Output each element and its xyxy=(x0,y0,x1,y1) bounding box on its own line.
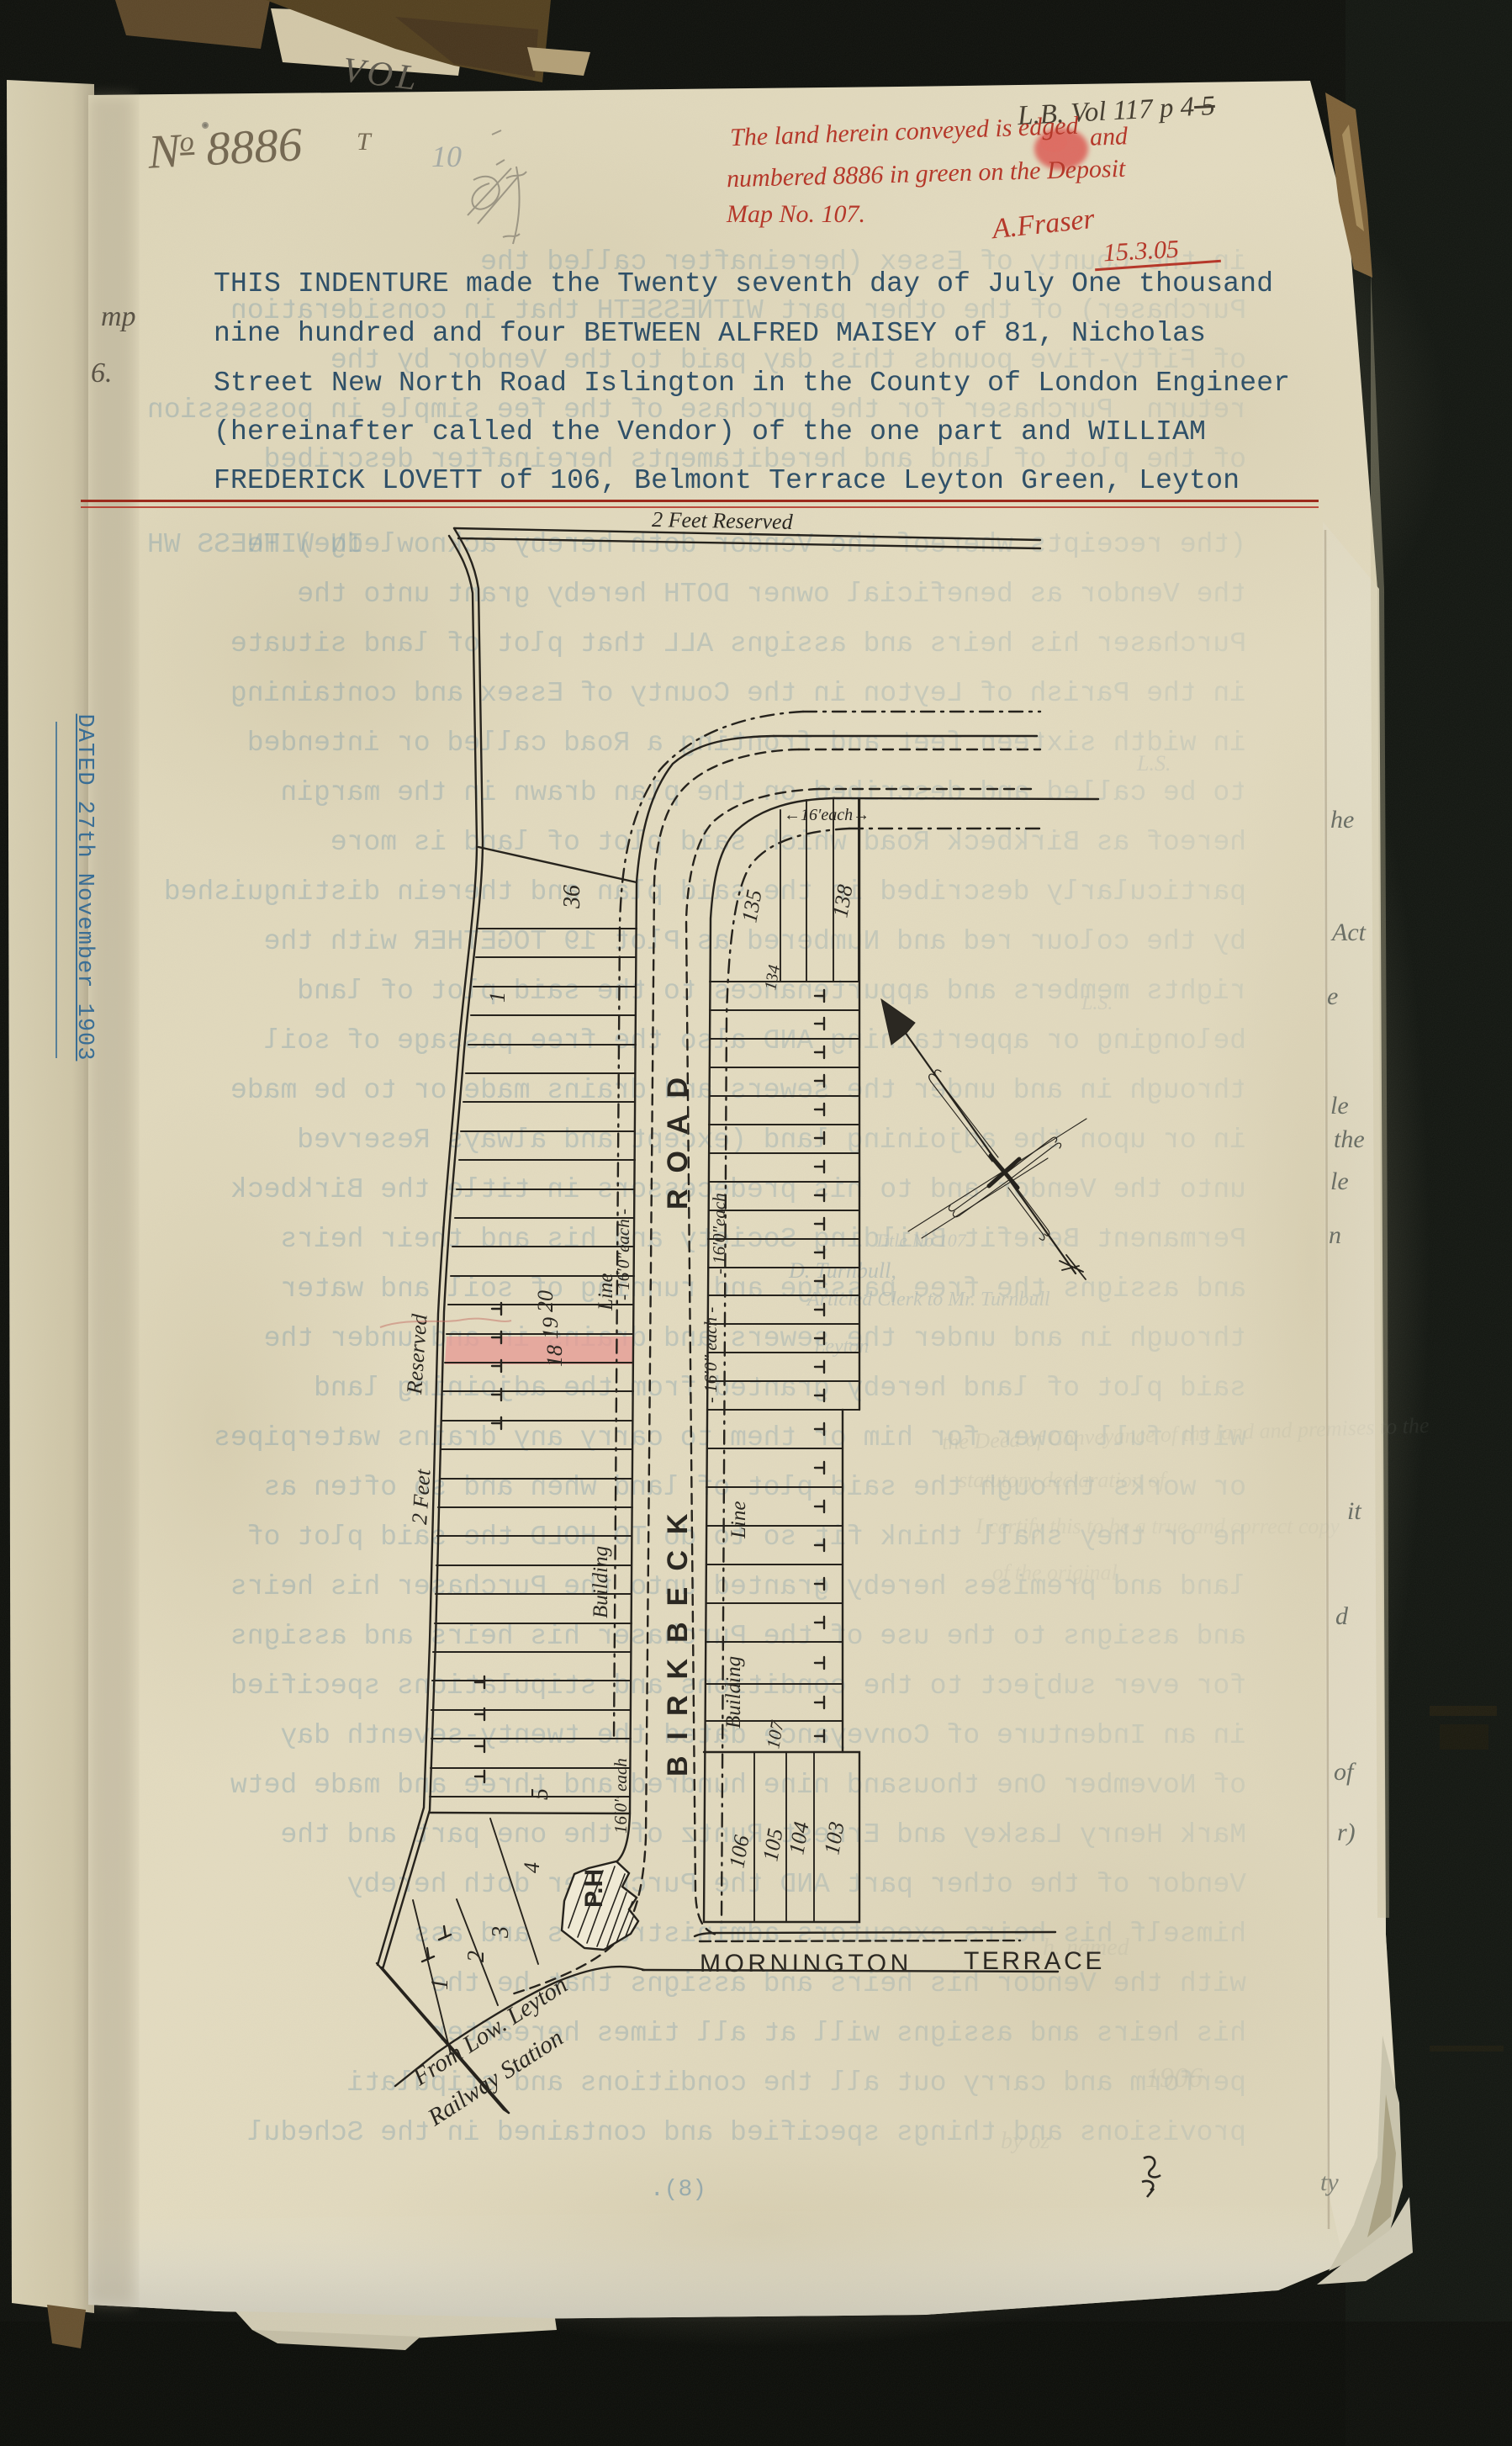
svg-text:2 Feet: 2 Feet xyxy=(407,1468,436,1525)
svg-text:135: 135 xyxy=(737,888,766,924)
svg-text:18: 18 xyxy=(542,1345,567,1367)
svg-text:MORNINGTON: MORNINGTON xyxy=(700,1950,912,1977)
svg-text:19: 19 xyxy=(538,1317,563,1339)
svg-text:BIRKBECK: BIRKBECK xyxy=(662,1498,694,1776)
svg-text:5: 5 xyxy=(527,1788,553,1800)
svg-text:16′0″ each: 16′0″ each xyxy=(611,1758,631,1834)
svg-text:2: 2 xyxy=(463,1951,489,1962)
svg-text:P.H: P.H xyxy=(580,1869,608,1908)
svg-text:2 Feet Reserved: 2 Feet Reserved xyxy=(652,507,794,534)
svg-text:134: 134 xyxy=(761,964,784,992)
svg-text:20: 20 xyxy=(533,1290,558,1312)
svg-text:Building: Building xyxy=(589,1546,612,1618)
svg-text:104: 104 xyxy=(784,1820,813,1856)
svg-text:Reserved: Reserved xyxy=(402,1312,432,1395)
svg-text:36: 36 xyxy=(559,885,585,909)
svg-text:Building: Building xyxy=(722,1656,745,1729)
svg-text:138: 138 xyxy=(827,883,857,919)
svg-text:106: 106 xyxy=(724,1834,753,1870)
svg-text:- 16′0″each: - 16′0″each xyxy=(709,1193,729,1274)
svg-text:Line: Line xyxy=(727,1501,750,1539)
svg-text:- 16′0″each -: - 16′0″each - xyxy=(613,1209,633,1300)
svg-text:ROAD: ROAD xyxy=(662,1062,694,1210)
svg-text:105: 105 xyxy=(758,1827,787,1863)
svg-text:1: 1 xyxy=(427,1978,453,1990)
svg-text:4: 4 xyxy=(520,1862,544,1873)
svg-text:107: 107 xyxy=(762,1718,788,1750)
svg-text:TERRACE: TERRACE xyxy=(964,1947,1105,1975)
svg-text:103: 103 xyxy=(819,1820,849,1856)
svg-text:1: 1 xyxy=(485,992,510,1003)
svg-text:- 16′0″ each -: - 16′0″ each - xyxy=(700,1307,721,1403)
svg-text:3: 3 xyxy=(488,1926,514,1939)
svg-text:←16′each→: ←16′each→ xyxy=(784,806,870,824)
